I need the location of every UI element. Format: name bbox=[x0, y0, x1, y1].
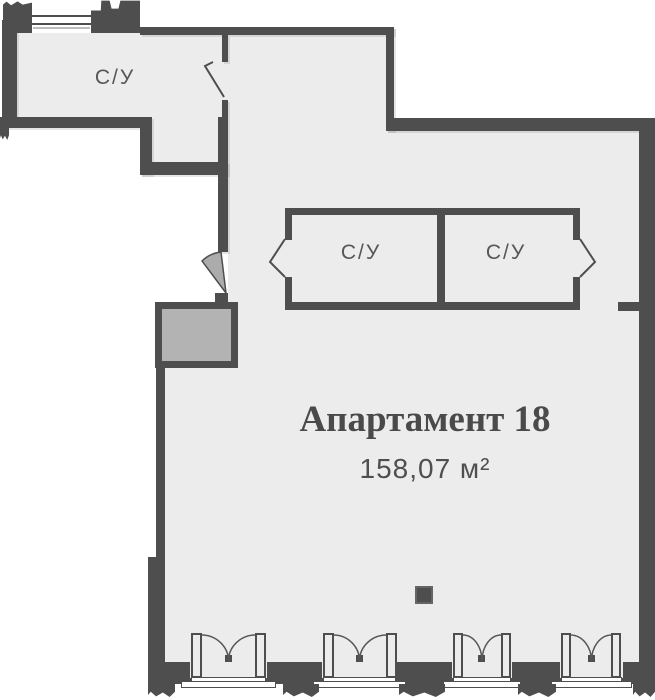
wall-right bbox=[639, 118, 655, 684]
wall-entry-vertical bbox=[218, 117, 228, 252]
pier-torn-3 bbox=[518, 684, 556, 697]
wall-stub-bottom-left bbox=[0, 128, 9, 140]
door-panel-right-2 bbox=[386, 633, 397, 678]
room-label-bathroom-top-left: С/У bbox=[75, 66, 155, 90]
wall-bathroom-bottom bbox=[0, 117, 150, 128]
pier-torn-left bbox=[148, 684, 175, 697]
wall-box-left-upper bbox=[285, 208, 292, 240]
door-panel-left-2 bbox=[323, 633, 334, 678]
wall-left-bathroom bbox=[2, 20, 17, 117]
door-meet-3 bbox=[478, 655, 485, 662]
pier-torn-right bbox=[633, 684, 655, 697]
window-top bbox=[32, 15, 91, 25]
sill-outer-1 bbox=[181, 681, 276, 688]
wall-top-band bbox=[140, 27, 394, 35]
entry-door-swing bbox=[202, 252, 226, 293]
wall-box-right-upper bbox=[573, 208, 580, 240]
wall-top-right bbox=[386, 118, 655, 131]
door-panel-right-3 bbox=[501, 633, 511, 678]
sill-outer-3 bbox=[443, 681, 521, 688]
window-sill-line bbox=[33, 27, 90, 29]
floor-plan: С/У С/У С/У Апартамент 18 158,07 м² bbox=[0, 0, 655, 700]
wall-niche-bottom bbox=[140, 162, 228, 175]
apartment-title: Апартамент 18 bbox=[230, 398, 620, 441]
wall-left-lower-thick bbox=[148, 557, 165, 662]
room-fill-left-strip bbox=[165, 368, 228, 662]
wall-left-lower-thin bbox=[156, 368, 165, 557]
door-meet-1 bbox=[225, 655, 232, 662]
wall-box-divider bbox=[437, 215, 445, 302]
wall-right-stub bbox=[618, 302, 640, 311]
pier-torn-2 bbox=[399, 684, 445, 697]
wall-stub-top-mid bbox=[91, 0, 140, 33]
wall-bathroom-right-lower bbox=[222, 100, 228, 117]
door-panel-left-1 bbox=[191, 633, 202, 678]
door-meet-2 bbox=[356, 655, 363, 662]
shaft-duct-inner bbox=[162, 309, 231, 361]
sill-outer-4 bbox=[551, 681, 632, 688]
door-gap-bathroom bbox=[222, 62, 228, 100]
door-panel-right-1 bbox=[255, 633, 266, 678]
room-fill-bathroom-niche bbox=[150, 117, 218, 162]
apartment-area: 158,07 м² bbox=[230, 453, 620, 485]
room-label-bathroom-box-right: С/У bbox=[466, 241, 546, 265]
door-panel-left-3 bbox=[453, 633, 463, 678]
column bbox=[415, 586, 433, 604]
door-panel-right-4 bbox=[611, 633, 621, 678]
sill-outer-2 bbox=[313, 681, 406, 688]
wall-bathroom-right-upper bbox=[222, 35, 228, 62]
door-meet-4 bbox=[588, 655, 595, 662]
door-panel-left-4 bbox=[561, 633, 571, 678]
wall-box-top bbox=[285, 208, 580, 215]
room-fill-hall bbox=[228, 35, 386, 662]
wall-box-bottom bbox=[285, 302, 580, 310]
pier-torn-1 bbox=[283, 684, 319, 697]
wall-step-vertical bbox=[386, 27, 394, 131]
room-label-bathroom-box-left: С/У bbox=[321, 241, 401, 265]
